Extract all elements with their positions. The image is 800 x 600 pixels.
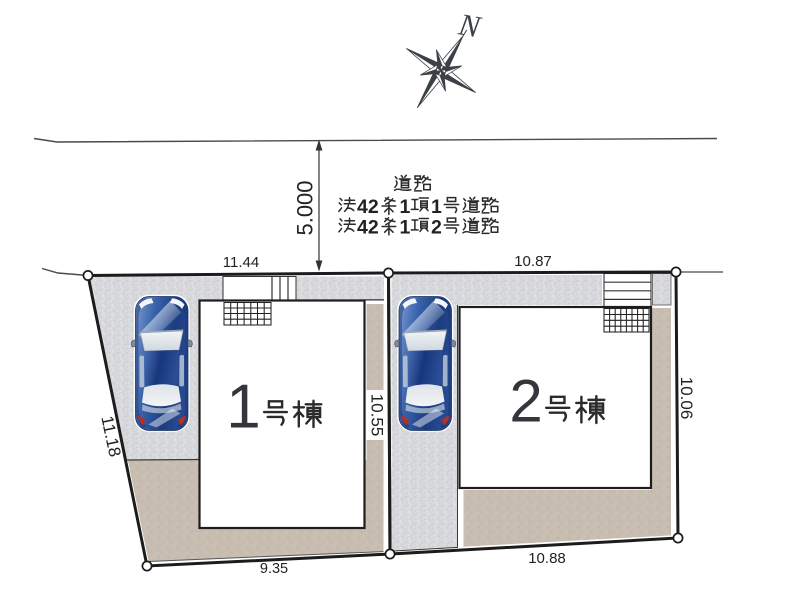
svg-text:2: 2 bbox=[509, 368, 542, 435]
svg-text:10.06: 10.06 bbox=[677, 377, 696, 420]
svg-text:11.44: 11.44 bbox=[223, 254, 259, 271]
svg-text:9.35: 9.35 bbox=[260, 561, 288, 577]
svg-text:2: 2 bbox=[431, 217, 442, 239]
svg-text:1: 1 bbox=[431, 196, 442, 218]
svg-text:1: 1 bbox=[400, 217, 411, 239]
svg-text:42: 42 bbox=[357, 196, 379, 218]
svg-text:5.000: 5.000 bbox=[293, 180, 318, 235]
svg-text:10.55: 10.55 bbox=[368, 394, 387, 437]
svg-text:1: 1 bbox=[400, 196, 411, 218]
svg-text:10.88: 10.88 bbox=[528, 550, 566, 567]
svg-text:42: 42 bbox=[357, 217, 379, 239]
svg-text:10.87: 10.87 bbox=[514, 253, 552, 270]
svg-text:N: N bbox=[455, 6, 485, 45]
svg-text:1: 1 bbox=[226, 373, 260, 442]
